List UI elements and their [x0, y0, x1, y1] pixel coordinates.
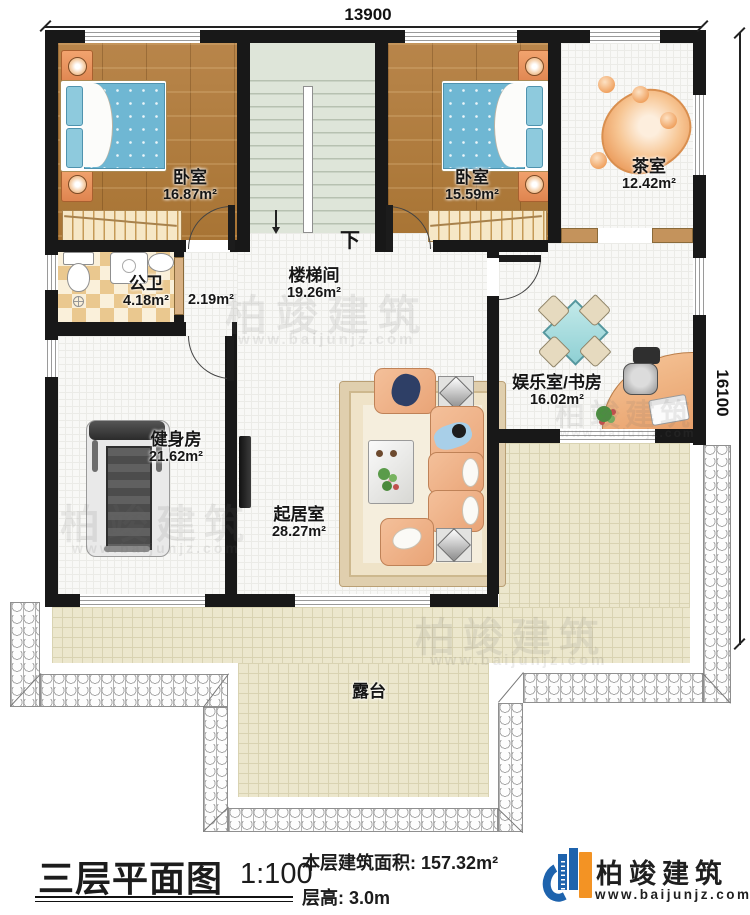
wall-door-jamb: [487, 252, 499, 258]
wall-left: [45, 30, 58, 607]
window: [45, 340, 58, 377]
dimension-width-line: [45, 26, 702, 28]
terrace-tile-border: [40, 674, 228, 707]
table-lamp: [525, 175, 544, 194]
bedroom1-door-leaf: [228, 205, 235, 250]
stair-handrail: [303, 86, 313, 233]
floor-area-label: 本层建筑面积:: [302, 853, 416, 873]
person-head: [452, 424, 466, 438]
wardrobe: [62, 210, 182, 242]
room-label-bathroom: 公卫 4.18m²: [123, 274, 169, 309]
treadmill-roller: [104, 546, 150, 552]
tea-stool: [660, 112, 677, 129]
room-label-bedroom2: 卧室 15.59m²: [445, 168, 499, 203]
terrace-floor: [52, 607, 690, 663]
stair-down-label: 下: [340, 224, 360, 253]
window: [405, 30, 517, 43]
plan-title: 三层平面图: [38, 850, 223, 902]
bed-pillow: [526, 86, 543, 126]
floor-plan-canvas: 13900 16100: [0, 0, 750, 915]
potted-plant: [596, 406, 612, 422]
shower-drain: [122, 259, 136, 273]
bathroom-sliding-door: [174, 257, 184, 315]
title-underline: [35, 901, 293, 902]
dimension-height-label: 16100: [712, 369, 732, 416]
tea-stool: [632, 86, 649, 103]
sofa-cushion: [462, 458, 479, 487]
floor-height-line: 层高: 3.0m: [302, 884, 390, 910]
toilet-bowl: [67, 263, 90, 292]
floor-area-value: 157.32m²: [421, 853, 498, 873]
wardrobe: [428, 210, 547, 242]
bedroom2-door-leaf: [386, 205, 393, 250]
floor-area-line: 本层建筑面积: 157.32m²: [302, 849, 498, 875]
room-label-gym: 健身房 21.62m²: [149, 430, 203, 465]
terrace-tile-border: [228, 808, 498, 832]
floor-height-label: 层高:: [302, 888, 344, 908]
sink-basin: [148, 253, 174, 272]
dimension-width-label: 13900: [344, 5, 391, 25]
bed-pillow: [66, 128, 83, 168]
treadmill-belt: [106, 446, 152, 550]
wall-bedroom2-south: [433, 240, 548, 252]
office-chair: [623, 363, 658, 395]
window: [693, 258, 706, 315]
table-lamp: [68, 57, 87, 76]
table-lamp: [68, 175, 87, 194]
tile-border-miter: [498, 672, 524, 703]
logo-building-bar-orange: [579, 852, 592, 898]
sofa-cushion: [462, 496, 479, 525]
floor-height-value: 3.0m: [349, 888, 390, 908]
logo-building-bar: [569, 848, 578, 890]
logo-building-bar: [558, 854, 567, 890]
bed-blanket: [494, 83, 525, 167]
wall-door-jamb: [174, 315, 184, 322]
wall-bedroom1-south: [58, 240, 186, 252]
terrace-sliding-door: [80, 594, 205, 607]
window: [85, 30, 200, 43]
brand-logo-icon: [543, 846, 593, 908]
window: [590, 30, 660, 43]
stair-arrow-head: [272, 227, 280, 234]
wall-stair-west: [237, 30, 250, 252]
room-label-small-hall: 2.19m²: [188, 292, 234, 308]
tea-cup: [390, 450, 397, 457]
recroom-door-leaf: [499, 255, 541, 262]
floor-drain: [73, 296, 84, 307]
wall-door-jamb: [232, 322, 237, 336]
room-label-stairwell: 楼梯间 19.26m²: [287, 266, 341, 301]
wall-bathroom-south: [45, 322, 186, 336]
terrace-floor-right: [499, 443, 690, 607]
wall-tearoom-west: [548, 30, 561, 243]
room-label-rec-room: 娱乐室/书房 16.02m²: [512, 373, 602, 408]
terrace-tile-border: [523, 673, 703, 703]
gym-door-leaf: [227, 336, 234, 381]
title-underline: [35, 896, 293, 898]
terrace-tile-border: [703, 445, 731, 703]
room-label-tea-room: 茶室 12.42m²: [622, 157, 676, 192]
wall-right: [693, 30, 706, 445]
brand-website: www.baijunjz.com: [595, 887, 750, 902]
stair-direction-arrow: [275, 210, 277, 228]
tea-stool: [598, 76, 615, 93]
tea-counter: [652, 228, 693, 243]
terrace-sliding-door: [295, 594, 430, 607]
room-label-living-room: 起居室 28.27m²: [272, 505, 326, 540]
tea-cup: [376, 450, 383, 457]
bed-pillow: [526, 128, 543, 168]
flower-bouquet: [378, 468, 390, 480]
tv-screen: [239, 436, 251, 508]
treadmill-handle: [92, 440, 98, 472]
tea-stool: [590, 152, 607, 169]
bed-pillow: [66, 86, 83, 126]
window: [560, 429, 655, 443]
room-label-terrace: 露台: [352, 682, 386, 701]
window: [693, 95, 706, 175]
brand-name: 柏竣建筑: [596, 852, 728, 891]
dimension-height-line: [739, 33, 741, 645]
terrace-tile-border: [203, 707, 228, 832]
wall-living-east: [487, 296, 499, 594]
tea-counter: [561, 228, 598, 243]
table-lamp: [525, 57, 544, 76]
computer-monitor: [633, 347, 660, 364]
window: [45, 255, 58, 290]
room-label-bedroom1: 卧室 16.87m²: [163, 168, 217, 203]
